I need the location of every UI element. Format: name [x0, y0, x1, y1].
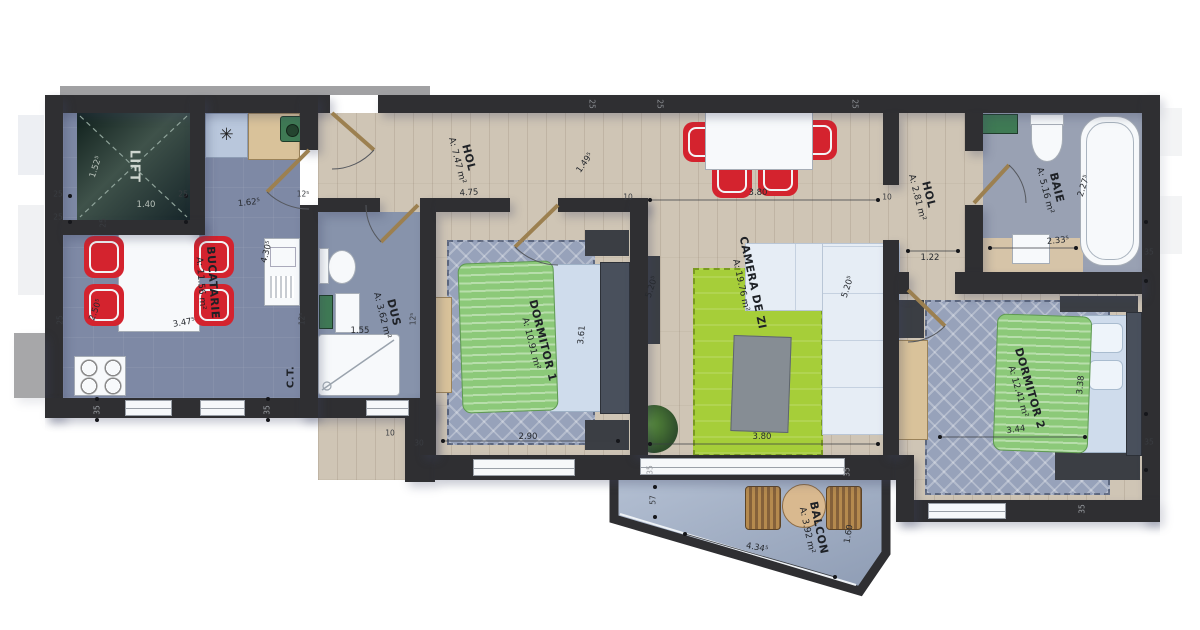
wall-marker: 10: [882, 193, 892, 202]
wall-marker: 25: [53, 190, 63, 199]
room-label-bucatarie: BUCATARIEA: 11.56 m²: [193, 246, 221, 320]
dim-camera-width-top: 3.80: [749, 188, 768, 198]
floor-plan: ✳: [0, 0, 1200, 630]
wall-marker: 12⁵: [298, 313, 307, 326]
wall-marker: 25: [99, 218, 108, 228]
wall-marker: 25: [178, 190, 188, 199]
shower-drain-icon: [322, 340, 394, 390]
room-label-ct: C.T.: [285, 366, 297, 388]
door-dormitor1: [515, 205, 558, 265]
wall-marker: 30: [414, 439, 424, 448]
wall-marker: 12⁵: [409, 313, 418, 326]
door-kitchen: [267, 150, 309, 209]
door-dormitor2: [908, 290, 945, 342]
wall-marker: 35: [263, 405, 272, 415]
wall-marker: 25: [851, 99, 860, 109]
wall-marker: 35: [1144, 248, 1154, 257]
wall-marker: 35: [646, 465, 655, 475]
fade-left: [0, 85, 45, 630]
dimension-dots: [68, 194, 1148, 579]
wall-marker: 35: [843, 467, 852, 477]
dim-dormitor1-width: 2.90: [519, 432, 538, 442]
dim-hol2-width: 1.22: [921, 253, 940, 263]
fade-right: [1160, 85, 1200, 545]
dim-dormitor1-depth: 3.61: [576, 325, 588, 345]
wall-marker: 10: [623, 193, 633, 202]
wall-marker: 35: [1144, 438, 1154, 447]
dim-dormitor2-depth: 3.38: [1075, 375, 1087, 395]
door-entrance: [332, 113, 374, 169]
dim-camera-width-bottom: 3.80: [753, 432, 772, 442]
neighbor-wall-top: [60, 86, 430, 95]
wall-marker: 25: [588, 99, 597, 109]
door-dus: [366, 205, 418, 242]
wall-marker: 35: [93, 405, 102, 415]
wall-marker: 35: [1078, 504, 1087, 514]
wall-marker: 10: [385, 429, 395, 438]
wall-marker: 57: [649, 495, 658, 505]
dim-hol1-width: 4.75: [459, 187, 479, 198]
dimension-lines: [443, 200, 1085, 577]
room-label-lift: LIFT: [126, 150, 141, 183]
wall-marker: 25: [56, 315, 65, 325]
door-baie: [974, 165, 1026, 203]
wall-marker: 12⁵: [297, 190, 310, 199]
wall-marker: 25: [53, 213, 63, 222]
dim-dus-width: 1.55: [351, 326, 370, 336]
wall-marker: 25: [656, 99, 665, 109]
dim-lift-width: 1.40: [137, 200, 156, 210]
